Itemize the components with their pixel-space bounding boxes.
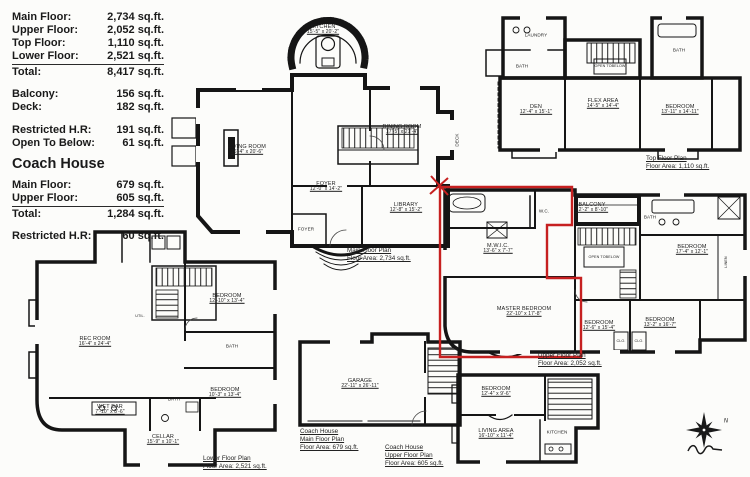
room-label-wc: W.C. xyxy=(539,208,549,213)
room-label-bath: BATH xyxy=(226,343,238,348)
room-label-kitchen: KITCHEN15'-5" x 20'-2" xyxy=(307,24,339,36)
coach-house-upper-lines xyxy=(452,375,598,462)
room-label-cellar: CELLAR15'-9" x 10'-1" xyxy=(147,434,179,446)
area-legend: Main Floor:2,734 sq.ft. Upper Floor:2,05… xyxy=(12,12,164,244)
room-label-bath: BATH xyxy=(644,214,656,219)
room-label-rec-room: REC ROOM16'-4" x 24'-4" xyxy=(79,336,111,348)
north-label: N xyxy=(724,418,728,425)
legend-row: Upper Floor:605 sq.ft. xyxy=(12,193,164,207)
legend-row: Open To Below:61 sq.ft. xyxy=(12,138,164,150)
room-label-bedroom: BEDROOM13'-11" x 14'-11" xyxy=(661,104,698,116)
room-label-garage: GARAGE22'-11" x 26'-11" xyxy=(341,378,378,390)
legend-row: Top Floor:1,110 sq.ft. xyxy=(12,38,164,50)
room-label-bedroom: BEDROOM12'-6" x 15'-4" xyxy=(583,320,615,332)
room-label-dining-room: DINING ROOM17'-5" x 21'-4" xyxy=(383,124,422,136)
open-to-below-label: OPEN TOBELOW xyxy=(595,64,626,68)
room-label-living-area: LIVING AREA16'-10" x 11'-4" xyxy=(478,428,513,440)
room-label-bedroom: BEDROOM12'-4" x 9'-6" xyxy=(481,386,510,398)
legend-row: Upper Floor:2,052 sq.ft. xyxy=(12,25,164,37)
room-label-living-room: LIVING ROOM16'-4" x 20'-6" xyxy=(228,144,266,156)
room-label-foyer: FOYER12'-0" x 14'-2" xyxy=(310,181,342,193)
legend-row-total: Total:8,417 sq.ft. xyxy=(12,67,164,79)
open-to-below-label: OPEN TOBELOW xyxy=(589,255,620,259)
room-label-bath: BATH xyxy=(516,63,528,68)
main-floor-plan-lines xyxy=(172,20,452,270)
signature-mark xyxy=(688,446,722,454)
closet-label: CLO. xyxy=(634,339,643,343)
room-label-bedroom: BEDROOM17'-4" x 12'-1" xyxy=(676,244,708,256)
closet-label: CLO. xyxy=(616,339,625,343)
room-label-mwic: M.W.I.C.13'-6" x 7'-7" xyxy=(483,243,512,255)
room-label-flex-area: FLEX AREA14'-5" x 14'-4" xyxy=(587,98,619,110)
room-label-bedroom: BEDROOM10'-3" x 13'-4" xyxy=(209,387,241,399)
top-floor-caption: Top Floor PlanFloor Area: 1,110 sq.ft. xyxy=(646,155,709,171)
legend-row-total: Total:1,284 sq.ft. xyxy=(12,209,164,221)
room-label-bedroom: BEDROOM13'-2" x 16'-7" xyxy=(644,317,676,329)
room-label-bath: BATH xyxy=(168,396,180,401)
coach-house-upper-caption: Coach HouseUpper Floor PlanFloor Area: 6… xyxy=(385,444,443,469)
legend-row: Main Floor:679 sq.ft. xyxy=(12,180,164,192)
util-label: UTIL. xyxy=(135,314,145,318)
room-label-foyer-small: FOYER xyxy=(298,226,314,231)
room-label-bedroom: BEDROOM12'-10" x 13'-4" xyxy=(209,293,244,305)
room-label-master-bedroom: MASTER BEDROOM22'-10" x 17'-8" xyxy=(497,306,551,318)
linen-label: LINEN xyxy=(724,256,728,267)
coach-house-main-lines xyxy=(300,334,460,425)
legend-row: Restricted H.R:60 sq.ft. xyxy=(12,231,164,243)
north-compass-icon xyxy=(686,412,722,448)
room-label-wet-bar: WET BAR7'-10" x 8'-6" xyxy=(95,404,124,416)
top-floor-plan-lines xyxy=(486,18,740,159)
lower-floor-caption: Lower Floor PlanFloor Area: 2,521 sq.ft. xyxy=(203,455,267,471)
main-floor-caption: Main Floor PlanFloor Area: 2,734 sq.ft. xyxy=(347,247,411,263)
upper-floor-caption: Upper Floor PlanFloor Area: 2,052 sq.ft. xyxy=(538,352,602,368)
legend-row: Main Floor:2,734 sq.ft. xyxy=(12,12,164,24)
coach-house-heading: Coach House xyxy=(12,157,164,172)
room-label-bath: BATH xyxy=(673,47,685,52)
room-label-laundry: LAUNDRY xyxy=(525,32,548,37)
room-label-balcony: BALCONY12'-2" x 8'-10" xyxy=(576,202,608,214)
room-label-den: DEN12'-4" x 15'-1" xyxy=(520,104,552,116)
floorplan-sheet: Main Floor:2,734 sq.ft. Upper Floor:2,05… xyxy=(0,0,750,477)
room-label-kitchen: KITCHEN xyxy=(547,429,568,434)
room-label-library: LIBRARY12'-8" x 15'-2" xyxy=(390,202,422,214)
legend-row: Deck:182 sq.ft. xyxy=(12,102,164,114)
coach-house-main-caption: Coach HouseMain Floor PlanFloor Area: 67… xyxy=(300,428,358,453)
legend-row: Restricted H.R:191 sq.ft. xyxy=(12,125,164,137)
legend-row: Lower Floor:2,521 sq.ft. xyxy=(12,51,164,65)
room-label-deck: DECK xyxy=(454,133,459,146)
legend-row: Balcony:156 sq.ft. xyxy=(12,89,164,101)
